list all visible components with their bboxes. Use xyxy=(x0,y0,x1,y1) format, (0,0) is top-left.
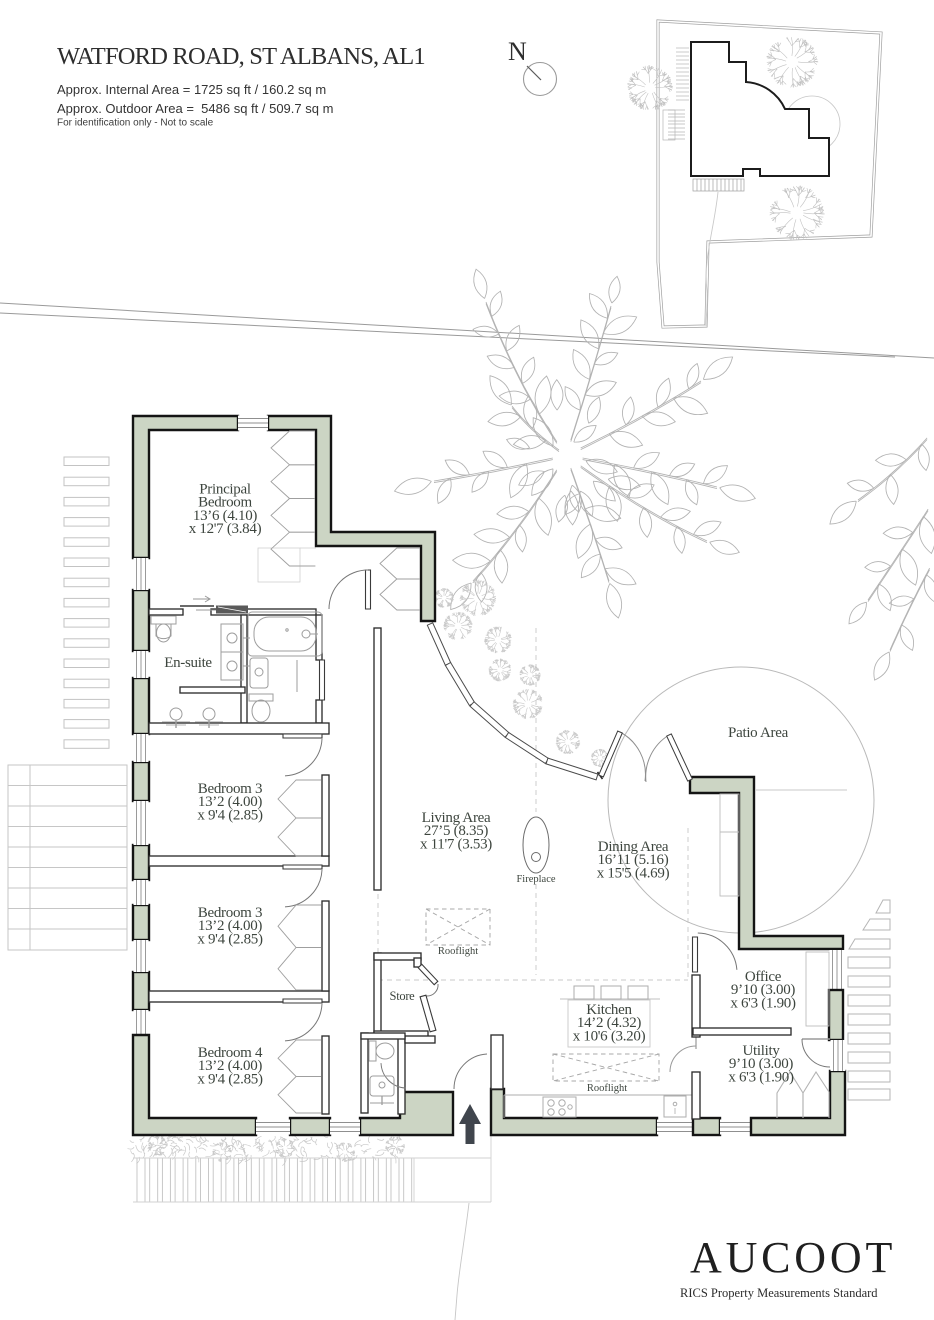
svg-text:Approx. Internal Area = 1725 s: Approx. Internal Area = 1725 sq ft / 160… xyxy=(57,82,326,97)
svg-text:RICS Property Measurements Sta: RICS Property Measurements Standard xyxy=(680,1286,878,1300)
svg-text:Dining Area16’11 (5.16)x 15'5: Dining Area16’11 (5.16)x 15'5 (4.69) xyxy=(597,839,670,881)
svg-text:For identification only - Not: For identification only - Not to scale xyxy=(57,118,214,129)
svg-text:Rooflight: Rooflight xyxy=(587,1083,627,1094)
svg-text:Bedroom 413’2 (4.00)x 9'4 (2.8: Bedroom 413’2 (4.00)x 9'4 (2.85) xyxy=(197,1045,263,1087)
svg-text:WATFORD ROAD, ST ALBANS, AL1: WATFORD ROAD, ST ALBANS, AL1 xyxy=(57,43,425,70)
svg-text:Bedroom 313’2 (4.00)x 9'4 (2.8: Bedroom 313’2 (4.00)x 9'4 (2.85) xyxy=(197,781,263,823)
svg-text:Rooflight: Rooflight xyxy=(438,946,478,957)
svg-text:Fireplace: Fireplace xyxy=(516,874,555,885)
svg-text:Bedroom 313’2 (4.00)x 9'4 (2.8: Bedroom 313’2 (4.00)x 9'4 (2.85) xyxy=(197,905,263,947)
svg-text:En-suite: En-suite xyxy=(164,655,212,671)
svg-text:Living Area27’5 (8.35)x 11'7 (: Living Area27’5 (8.35)x 11'7 (3.53) xyxy=(420,810,492,852)
svg-text:N: N xyxy=(508,37,527,66)
svg-text:Patio Area: Patio Area xyxy=(728,725,789,741)
svg-text:PrincipalBedroom13’6 (4.10)x 1: PrincipalBedroom13’6 (4.10)x 12'7 (3.84) xyxy=(189,482,262,538)
svg-text:AUCOOT: AUCOOT xyxy=(690,1233,896,1282)
svg-text:Approx. Outdoor Area = 5486 s: Approx. Outdoor Area = 5486 sq ft / 509.… xyxy=(57,101,333,116)
svg-text:Store: Store xyxy=(390,989,416,1003)
